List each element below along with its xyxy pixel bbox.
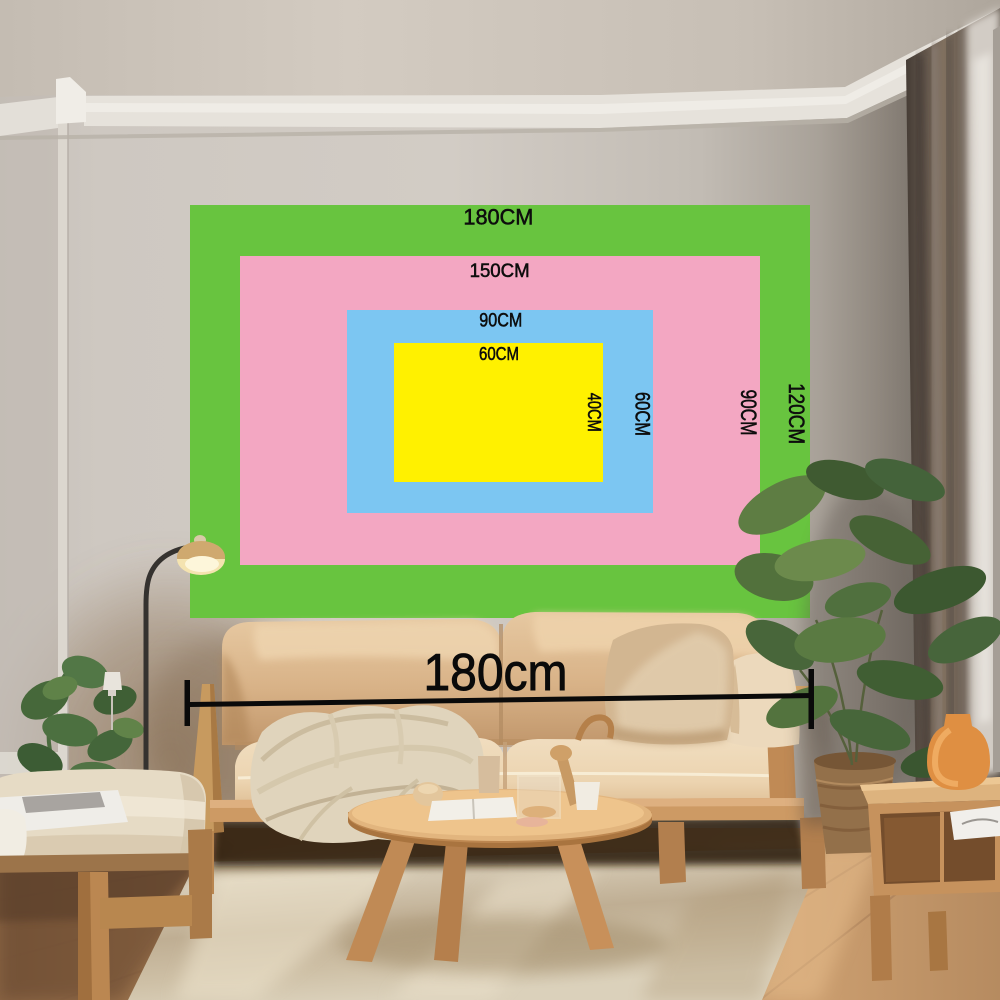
svg-text:60CM: 60CM xyxy=(631,392,654,436)
svg-text:120CM: 120CM xyxy=(784,383,809,444)
svg-text:60CM: 60CM xyxy=(479,343,519,364)
svg-text:90CM: 90CM xyxy=(479,311,522,332)
svg-text:40CM: 40CM xyxy=(584,393,604,432)
svg-text:180CM: 180CM xyxy=(463,205,533,230)
svg-text:180cm: 180cm xyxy=(424,644,568,702)
svg-text:90CM: 90CM xyxy=(736,390,761,436)
svg-text:150CM: 150CM xyxy=(470,261,530,282)
